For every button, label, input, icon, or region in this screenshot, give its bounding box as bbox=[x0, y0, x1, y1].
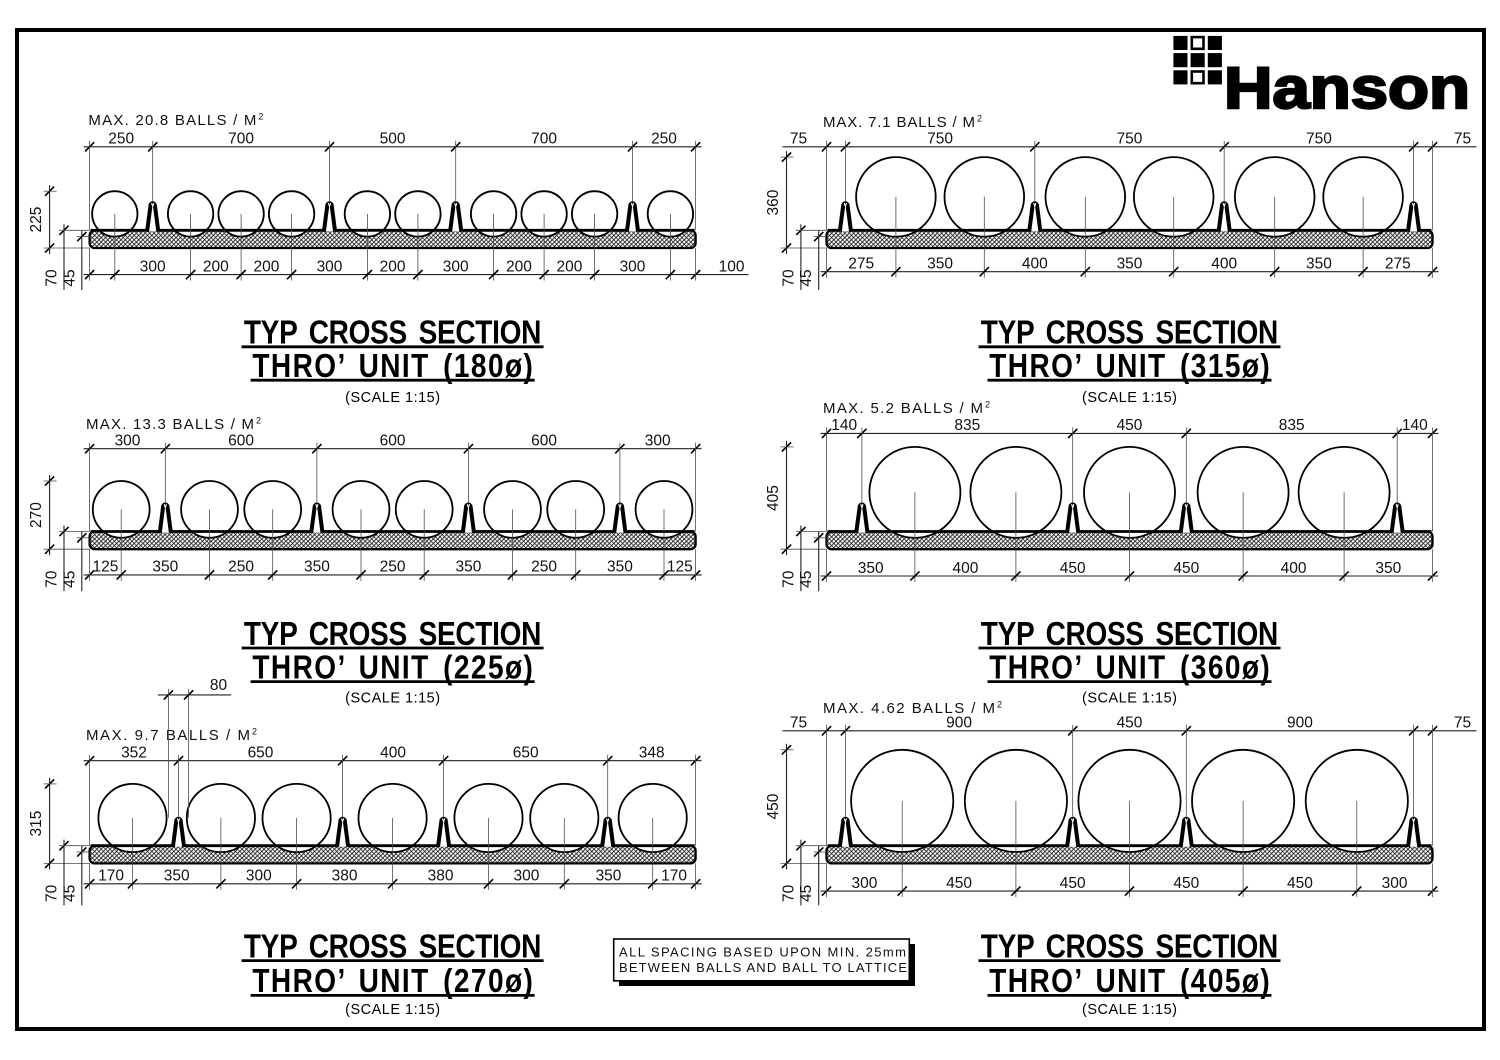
svg-text:300: 300 bbox=[513, 868, 539, 885]
svg-text:BETWEEN BALLS AND BALL TO LATT: BETWEEN BALLS AND BALL TO LATTICE bbox=[619, 960, 907, 975]
svg-text:250: 250 bbox=[380, 559, 406, 576]
svg-text:600: 600 bbox=[531, 433, 557, 450]
svg-text:MAX. 20.8 BALLS / M: MAX. 20.8 BALLS / M bbox=[88, 112, 256, 129]
svg-text:650: 650 bbox=[513, 745, 539, 762]
svg-text:352: 352 bbox=[121, 745, 147, 762]
svg-text:200: 200 bbox=[506, 258, 532, 275]
svg-text:450: 450 bbox=[1173, 875, 1199, 892]
svg-text:200: 200 bbox=[380, 258, 406, 275]
svg-text:405: 405 bbox=[765, 485, 782, 511]
svg-text:70: 70 bbox=[780, 570, 797, 588]
svg-text:450: 450 bbox=[1117, 417, 1143, 434]
svg-text:380: 380 bbox=[428, 868, 454, 885]
svg-text:300: 300 bbox=[140, 258, 166, 275]
svg-text:900: 900 bbox=[946, 715, 972, 732]
svg-text:350: 350 bbox=[858, 560, 884, 577]
svg-text:275: 275 bbox=[1385, 256, 1411, 273]
svg-text:70: 70 bbox=[44, 570, 61, 588]
svg-text:350: 350 bbox=[1375, 560, 1401, 577]
svg-text:500: 500 bbox=[380, 131, 406, 148]
svg-text:250: 250 bbox=[108, 131, 134, 148]
svg-text:250: 250 bbox=[531, 559, 557, 576]
svg-text:140: 140 bbox=[831, 417, 857, 434]
svg-text:300: 300 bbox=[443, 258, 469, 275]
svg-text:Hanson: Hanson bbox=[1224, 56, 1470, 121]
svg-text:(SCALE 1:15): (SCALE 1:15) bbox=[1082, 1002, 1177, 1018]
svg-text:75: 75 bbox=[790, 715, 807, 732]
svg-text:350: 350 bbox=[596, 868, 622, 885]
svg-text:450: 450 bbox=[1117, 715, 1143, 732]
svg-text:450: 450 bbox=[1060, 875, 1086, 892]
svg-text:300: 300 bbox=[246, 868, 272, 885]
svg-text:200: 200 bbox=[253, 258, 279, 275]
svg-text:100: 100 bbox=[719, 258, 745, 275]
svg-text:350: 350 bbox=[1306, 256, 1332, 273]
svg-text:270: 270 bbox=[28, 502, 45, 528]
svg-text:140: 140 bbox=[1402, 417, 1428, 434]
svg-text:350: 350 bbox=[455, 559, 481, 576]
svg-text:(SCALE 1:15): (SCALE 1:15) bbox=[345, 690, 440, 706]
svg-text:170: 170 bbox=[98, 868, 124, 885]
svg-text:300: 300 bbox=[317, 258, 343, 275]
svg-text:700: 700 bbox=[228, 131, 254, 148]
svg-text:125: 125 bbox=[92, 559, 118, 576]
svg-text:835: 835 bbox=[954, 417, 980, 434]
svg-text:600: 600 bbox=[380, 433, 406, 450]
svg-text:225: 225 bbox=[28, 207, 45, 233]
svg-text:450: 450 bbox=[765, 793, 782, 819]
svg-text:350: 350 bbox=[927, 256, 953, 273]
svg-text:75: 75 bbox=[790, 131, 807, 148]
svg-text:750: 750 bbox=[1117, 131, 1143, 148]
svg-text:300: 300 bbox=[1382, 875, 1408, 892]
svg-text:600: 600 bbox=[228, 433, 254, 450]
svg-text:350: 350 bbox=[304, 559, 330, 576]
svg-text:45: 45 bbox=[798, 885, 815, 902]
svg-text:450: 450 bbox=[1173, 560, 1199, 577]
svg-text:350: 350 bbox=[164, 868, 190, 885]
svg-text:170: 170 bbox=[661, 868, 687, 885]
svg-text:400: 400 bbox=[1281, 560, 1307, 577]
svg-text:2: 2 bbox=[252, 727, 257, 737]
svg-text:200: 200 bbox=[556, 258, 582, 275]
svg-text:450: 450 bbox=[1287, 875, 1313, 892]
svg-text:700: 700 bbox=[531, 131, 557, 148]
svg-text:400: 400 bbox=[1211, 256, 1237, 273]
svg-text:2: 2 bbox=[258, 112, 263, 122]
svg-text:70: 70 bbox=[44, 884, 61, 902]
svg-text:250: 250 bbox=[228, 559, 254, 576]
svg-text:45: 45 bbox=[61, 269, 78, 286]
svg-text:400: 400 bbox=[380, 745, 406, 762]
svg-text:200: 200 bbox=[203, 258, 229, 275]
svg-text:2: 2 bbox=[256, 416, 261, 426]
svg-text:70: 70 bbox=[44, 269, 61, 287]
svg-text:350: 350 bbox=[1117, 256, 1143, 273]
svg-text:450: 450 bbox=[946, 875, 972, 892]
svg-text:125: 125 bbox=[667, 559, 693, 576]
svg-text:45: 45 bbox=[61, 571, 78, 588]
svg-text:300: 300 bbox=[620, 258, 646, 275]
svg-text:300: 300 bbox=[115, 433, 141, 450]
svg-text:70: 70 bbox=[780, 884, 797, 902]
svg-text:650: 650 bbox=[248, 745, 274, 762]
svg-text:45: 45 bbox=[798, 571, 815, 588]
svg-text:80: 80 bbox=[210, 677, 228, 694]
svg-text:300: 300 bbox=[851, 875, 877, 892]
svg-text:360: 360 bbox=[765, 189, 782, 215]
svg-text:70: 70 bbox=[780, 269, 797, 287]
svg-text:380: 380 bbox=[332, 868, 358, 885]
svg-text:(SCALE 1:15): (SCALE 1:15) bbox=[345, 1002, 440, 1018]
svg-text:750: 750 bbox=[927, 131, 953, 148]
svg-text:45: 45 bbox=[798, 269, 815, 286]
svg-text:2: 2 bbox=[985, 400, 990, 410]
svg-text:400: 400 bbox=[1022, 256, 1048, 273]
svg-text:835: 835 bbox=[1279, 417, 1305, 434]
svg-text:2: 2 bbox=[997, 700, 1002, 710]
svg-text:348: 348 bbox=[639, 745, 665, 762]
svg-text:(SCALE 1:15): (SCALE 1:15) bbox=[1082, 390, 1177, 406]
svg-text:275: 275 bbox=[848, 256, 874, 273]
svg-text:450: 450 bbox=[1060, 560, 1086, 577]
svg-text:(SCALE 1:15): (SCALE 1:15) bbox=[345, 390, 440, 406]
svg-text:250: 250 bbox=[651, 131, 677, 148]
svg-text:315: 315 bbox=[28, 811, 45, 837]
svg-text:350: 350 bbox=[152, 559, 178, 576]
svg-text:MAX. 7.1 BALLS / M: MAX. 7.1 BALLS / M bbox=[823, 114, 975, 131]
svg-text:400: 400 bbox=[952, 560, 978, 577]
svg-text:750: 750 bbox=[1306, 131, 1332, 148]
svg-text:300: 300 bbox=[645, 433, 671, 450]
svg-text:(SCALE 1:15): (SCALE 1:15) bbox=[1082, 690, 1177, 706]
svg-text:350: 350 bbox=[607, 559, 633, 576]
svg-text:2: 2 bbox=[977, 114, 982, 124]
svg-text:MAX. 13.3 BALLS / M: MAX. 13.3 BALLS / M bbox=[86, 416, 254, 433]
svg-text:75: 75 bbox=[1454, 715, 1471, 732]
svg-text:900: 900 bbox=[1287, 715, 1313, 732]
svg-text:45: 45 bbox=[61, 885, 78, 902]
svg-text:75: 75 bbox=[1454, 131, 1471, 148]
